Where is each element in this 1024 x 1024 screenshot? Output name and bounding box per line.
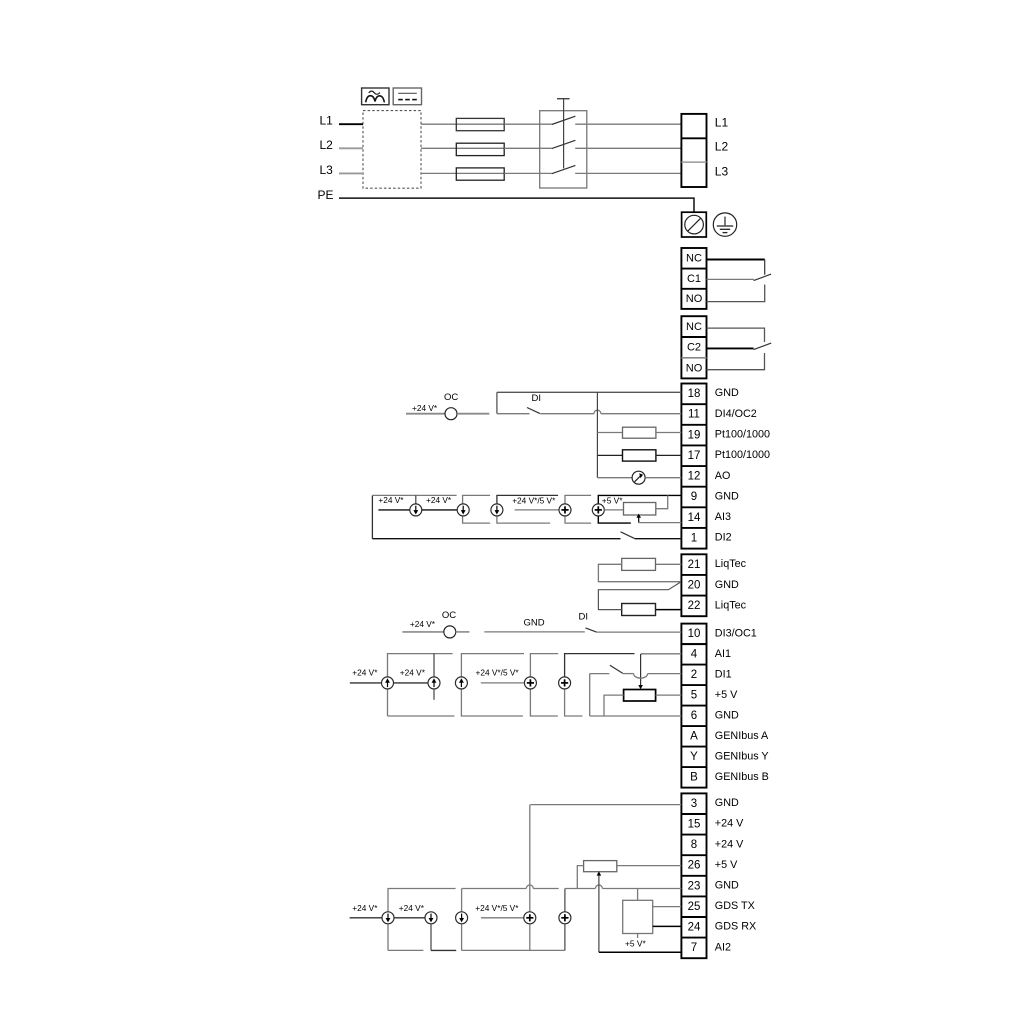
svg-text:GND: GND	[715, 709, 739, 721]
svg-text:26: 26	[688, 860, 701, 872]
svg-text:OC: OC	[444, 392, 458, 403]
svg-text:14: 14	[688, 512, 701, 524]
svg-text:L1: L1	[320, 114, 334, 128]
svg-text:15: 15	[688, 819, 701, 831]
svg-text:+5 V*: +5 V*	[602, 496, 623, 506]
svg-text:+24 V*: +24 V*	[378, 495, 404, 505]
svg-text:B: B	[690, 772, 698, 784]
svg-text:4: 4	[691, 649, 698, 661]
svg-text:DI: DI	[579, 612, 589, 623]
svg-text:PE: PE	[318, 188, 334, 202]
svg-text:L2: L2	[715, 140, 729, 154]
svg-text:25: 25	[688, 901, 701, 913]
svg-text:DI4/OC2: DI4/OC2	[715, 408, 757, 420]
svg-text:5: 5	[691, 690, 697, 702]
svg-text:+24 V*/5 V*: +24 V*/5 V*	[476, 667, 520, 677]
svg-text:GND: GND	[715, 579, 739, 591]
svg-text:+24 V*: +24 V*	[352, 667, 378, 677]
svg-text:+24 V*/5 V*: +24 V*/5 V*	[475, 903, 519, 913]
svg-text:L2: L2	[320, 138, 334, 152]
svg-text:OC: OC	[442, 610, 456, 621]
svg-text:DI3/OC1: DI3/OC1	[715, 627, 757, 639]
svg-text:GND: GND	[715, 490, 739, 502]
svg-text:+24 V*: +24 V*	[426, 495, 452, 505]
svg-text:C2: C2	[687, 342, 701, 354]
svg-text:NO: NO	[686, 362, 703, 374]
svg-text:GND: GND	[524, 618, 545, 629]
svg-text:17: 17	[688, 450, 701, 462]
svg-text:NO: NO	[686, 293, 703, 305]
svg-text:NC: NC	[686, 321, 702, 333]
svg-text:+5 V: +5 V	[715, 689, 738, 701]
svg-text:11: 11	[688, 409, 700, 421]
svg-text:21: 21	[688, 559, 701, 571]
svg-text:NC: NC	[686, 253, 702, 265]
svg-text:DI: DI	[532, 393, 542, 404]
svg-text:LiqTec: LiqTec	[715, 558, 747, 570]
svg-text:Y: Y	[690, 751, 698, 763]
svg-text:AI1: AI1	[715, 648, 731, 660]
svg-text:9: 9	[691, 491, 697, 503]
svg-text:Pt100/1000: Pt100/1000	[715, 449, 770, 461]
svg-text:1: 1	[691, 532, 697, 544]
svg-text:DI1: DI1	[715, 668, 732, 680]
svg-text:2: 2	[691, 669, 697, 681]
svg-text:Pt100/1000: Pt100/1000	[715, 428, 770, 440]
svg-text:19: 19	[688, 429, 701, 441]
svg-text:GENIbus A: GENIbus A	[715, 730, 769, 742]
svg-text:GDS TX: GDS TX	[715, 900, 755, 912]
svg-text:AO: AO	[715, 470, 731, 482]
svg-text:+5 V*: +5 V*	[625, 939, 646, 949]
svg-text:L3: L3	[320, 163, 334, 177]
svg-text:C1: C1	[687, 273, 701, 285]
svg-text:A: A	[690, 731, 698, 743]
svg-text:DI2: DI2	[715, 532, 732, 544]
svg-text:L3: L3	[715, 165, 729, 179]
svg-text:GND: GND	[715, 880, 739, 892]
svg-text:+24 V*: +24 V*	[410, 619, 436, 629]
svg-text:3: 3	[691, 798, 697, 810]
svg-text:+24 V: +24 V	[715, 838, 744, 850]
svg-text:22: 22	[688, 600, 701, 612]
svg-text:6: 6	[691, 710, 697, 722]
svg-text:GDS RX: GDS RX	[715, 921, 756, 933]
svg-text:GENIbus B: GENIbus B	[715, 771, 769, 783]
svg-text:12: 12	[688, 471, 701, 483]
svg-text:+24 V*: +24 V*	[412, 403, 438, 413]
svg-text:GENIbus Y: GENIbus Y	[715, 750, 769, 762]
svg-text:23: 23	[688, 880, 701, 892]
svg-text:AI3: AI3	[715, 511, 731, 523]
svg-text:AI2: AI2	[715, 941, 731, 953]
svg-text:+24 V*: +24 V*	[399, 903, 425, 913]
svg-text:+24 V*: +24 V*	[352, 903, 378, 913]
svg-text:+24 V*: +24 V*	[400, 667, 426, 677]
svg-text:GND: GND	[715, 387, 739, 399]
svg-text:20: 20	[688, 580, 701, 592]
svg-text:+5 V: +5 V	[715, 859, 738, 871]
svg-text:+24 V: +24 V	[715, 818, 744, 830]
svg-text:8: 8	[691, 839, 697, 851]
svg-text:GND: GND	[715, 797, 739, 809]
svg-text:7: 7	[691, 942, 697, 954]
svg-text:24: 24	[688, 922, 701, 934]
svg-text:LiqTec: LiqTec	[715, 599, 747, 611]
svg-text:18: 18	[688, 388, 701, 400]
svg-text:10: 10	[688, 628, 701, 640]
svg-text:L1: L1	[715, 116, 729, 130]
svg-text:+24 V*/5 V*: +24 V*/5 V*	[512, 495, 556, 505]
